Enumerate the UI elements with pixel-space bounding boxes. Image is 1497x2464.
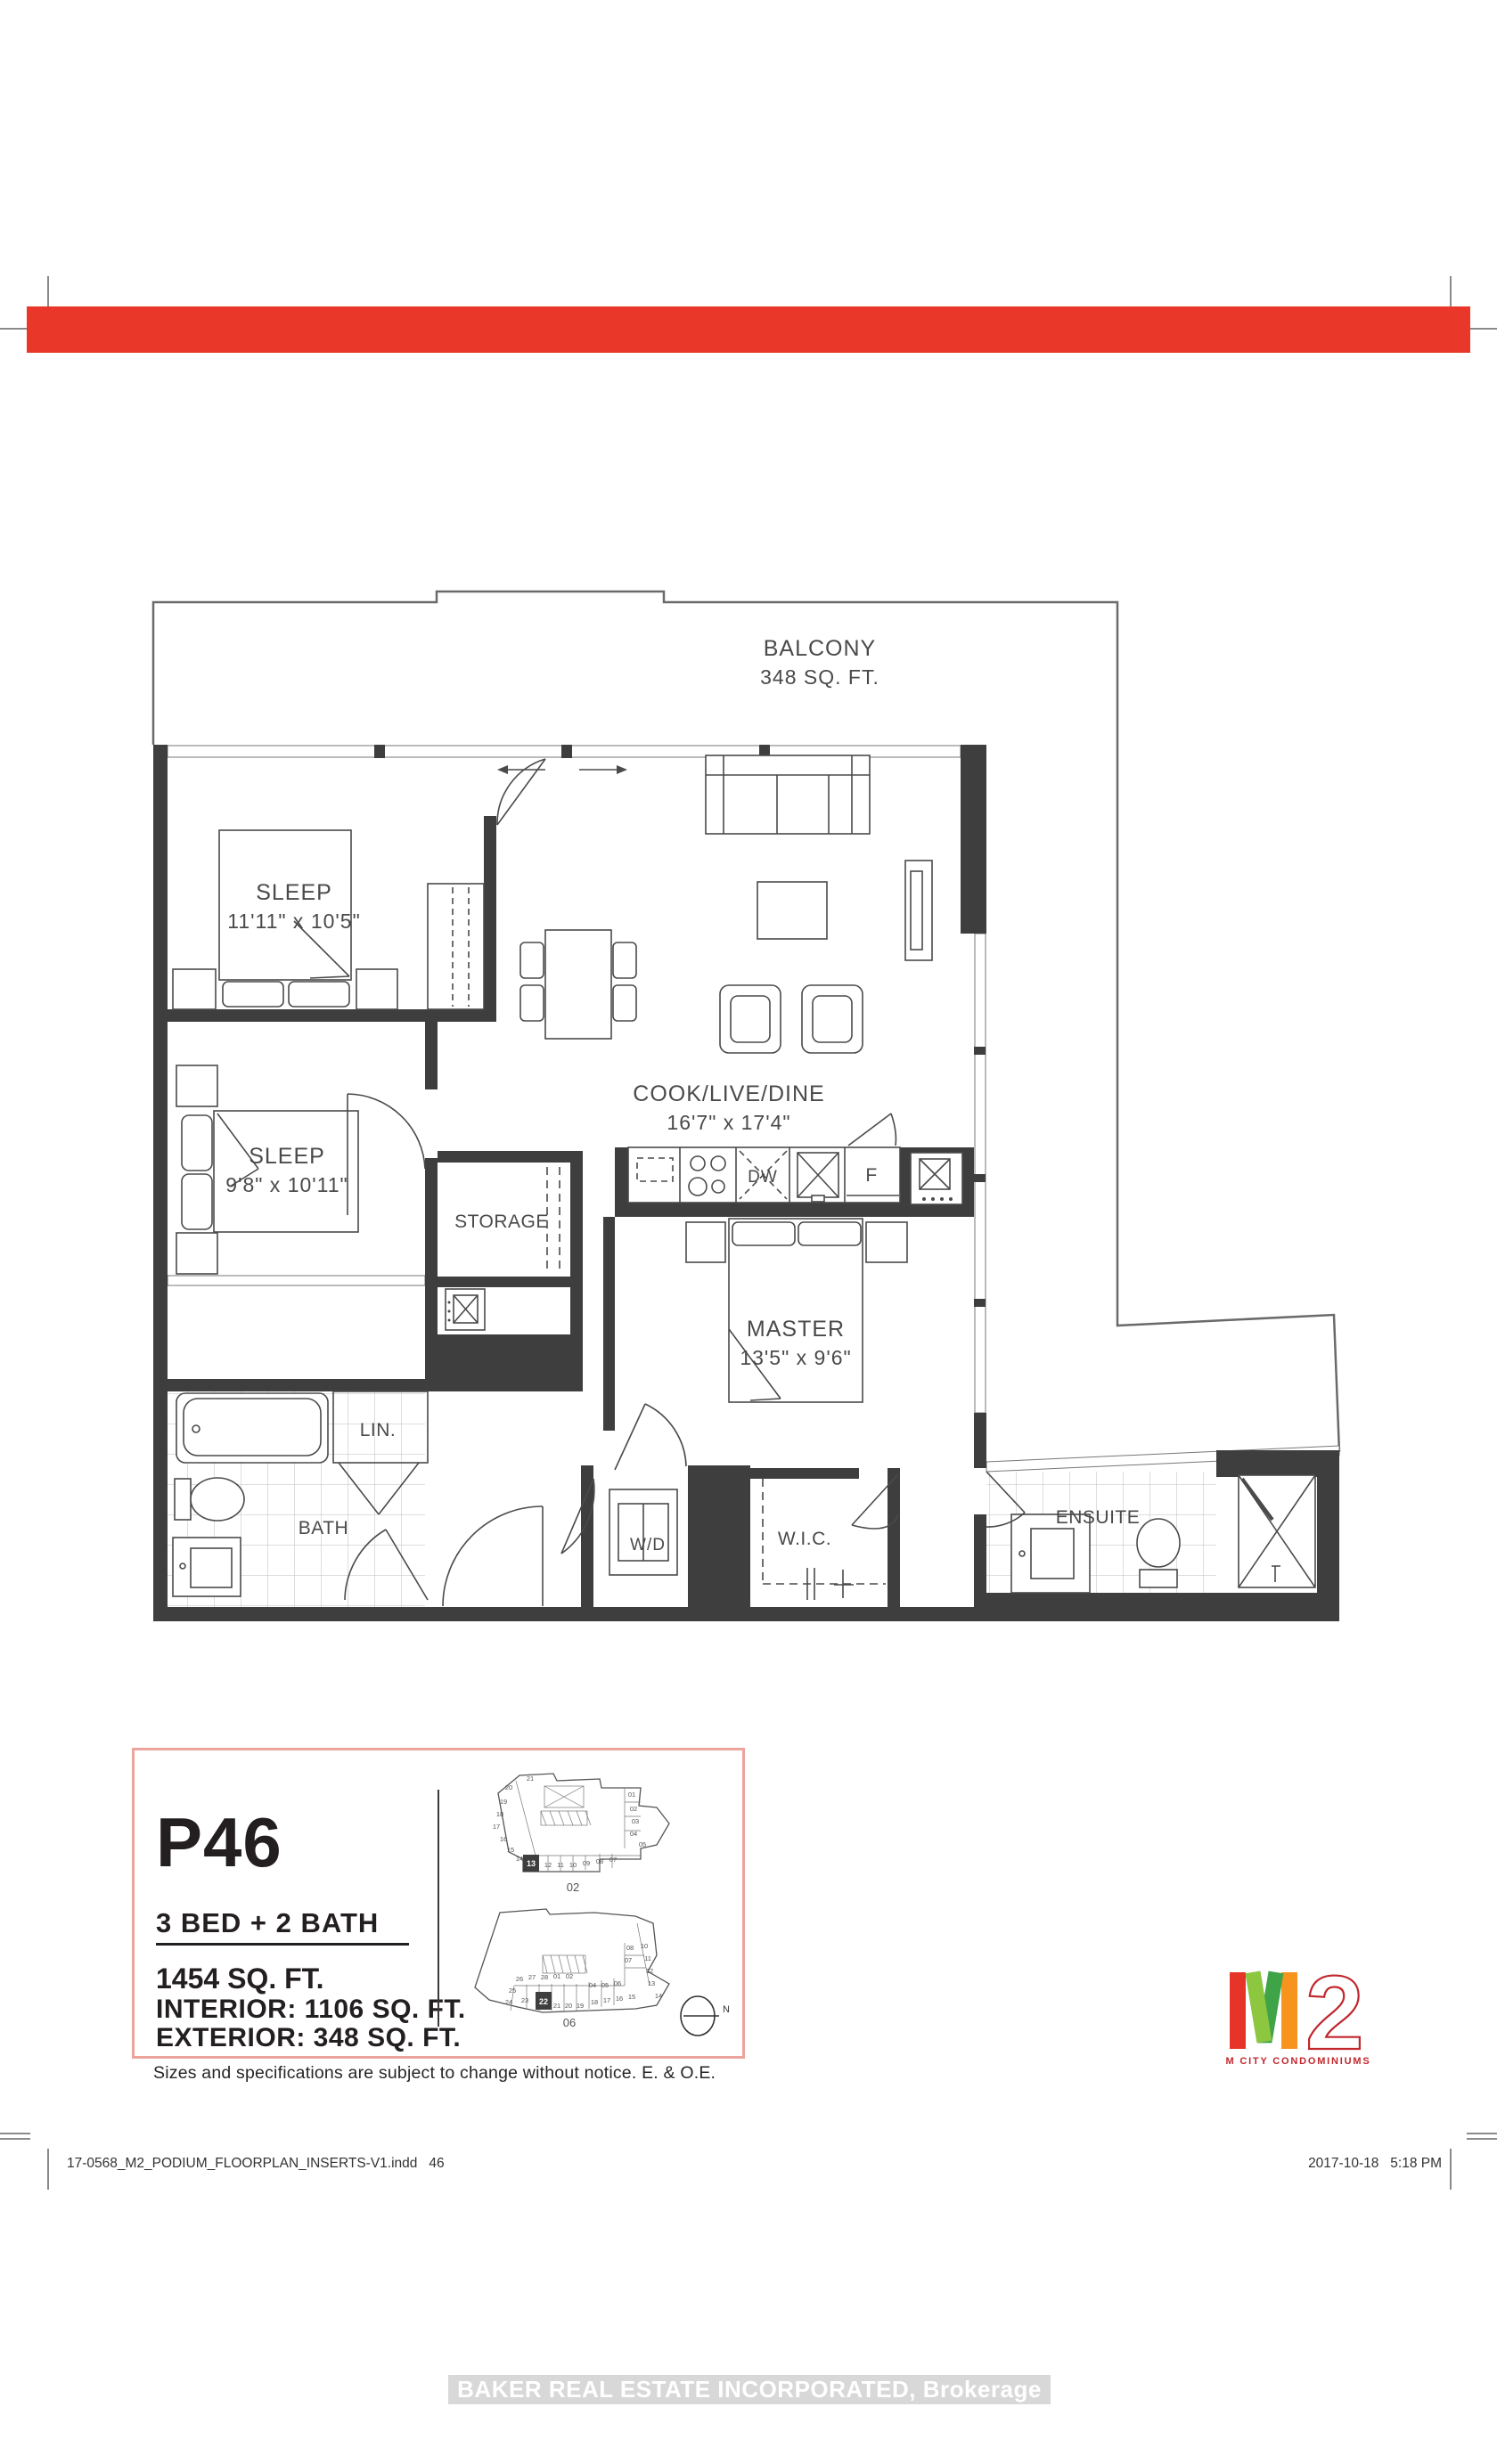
keyplan-unit-number: 24 [505, 1998, 512, 2006]
keyplan-unit-number: 14 [655, 1992, 662, 2000]
keyplan-unit-number: 28 [541, 1973, 548, 1981]
keyplan-unit-number: 06 [614, 1979, 621, 1987]
keyplan-unit-number: 04 [630, 1830, 637, 1838]
disclaimer-text: Sizes and specifications are subject to … [153, 2063, 716, 2084]
living-furniture [706, 755, 932, 1053]
keyplan-unit-number: 08 [596, 1857, 603, 1865]
dishwasher-label: DW [748, 1163, 778, 1192]
keyplan-unit-number: 25 [509, 1987, 516, 1995]
keyplan-unit-number: 04 [589, 1981, 596, 1989]
storage-room [446, 1167, 560, 1330]
keyplan-unit-number: 19 [500, 1798, 507, 1806]
north-label: N [723, 2004, 730, 2015]
keyplan-unit-number: 08 [626, 1944, 634, 1952]
linen-label: LIN. [360, 1416, 397, 1445]
keyplan-unit-number: 26 [516, 1975, 523, 1983]
sleep1-label: SLEEP 11'11" x 10'5" [227, 878, 361, 935]
crop-mark [47, 2149, 49, 2190]
balcony-label: BALCONY 348 SQ. FT. [760, 634, 879, 691]
keyplan-06: 22 2627280102252423040506212019181716150… [461, 1900, 685, 2030]
entry-doors [443, 1479, 594, 1606]
keyplan-unit-number: 23 [521, 1996, 528, 2004]
keyplan-unit-number: 10 [569, 1861, 577, 1869]
keyplan-unit-number: 10 [641, 1942, 648, 1950]
laundry-label: W/D [630, 1531, 666, 1560]
dining-set [520, 930, 636, 1039]
unit-info-box: P46 3 BED + 2 BATH 1454 SQ. FT. INTERIOR… [132, 1748, 745, 2059]
unit-code: P46 [156, 1802, 282, 1883]
keyplan-unit-number: 15 [628, 1993, 635, 2001]
bath-label: BATH [299, 1514, 348, 1543]
footer-filename: 17-0568_M2_PODIUM_FLOORPLAN_INSERTS-V1.i… [67, 2156, 445, 2172]
master-label: MASTER 13'5" x 9'6" [740, 1315, 851, 1372]
keyplan-unit-number: 27 [528, 1973, 536, 1981]
storage-label: STORAGE [454, 1208, 549, 1236]
keyplan-unit-number: 20 [505, 1783, 512, 1791]
divider-rule [156, 1943, 409, 1946]
keyplan-unit-number: 02 [566, 1972, 573, 1980]
keyplan-unit-number: 12 [646, 1967, 653, 1975]
keyplan-floor-label: 02 [567, 1881, 579, 1894]
crop-mark [1467, 2133, 1497, 2134]
keyplan-unit-number: 09 [583, 1859, 590, 1867]
m2-logo-tagline: M CITY CONDOMINIUMS [1223, 2056, 1374, 2067]
keyplan-highlight-number: 13 [527, 1859, 536, 1868]
keyplan-unit-number: 11 [644, 1954, 651, 1962]
keyplan-unit-number: 01 [628, 1791, 635, 1799]
keyplan-unit-number: 11 [557, 1861, 564, 1869]
keyplan-unit-number: 12 [544, 1861, 552, 1869]
keyplan-unit-number: 21 [527, 1775, 534, 1783]
keyplan-unit-number: 03 [632, 1817, 639, 1825]
cook-live-dine-label: COOK/LIVE/DINE 16'7" x 17'4" [633, 1080, 824, 1137]
crop-mark [1450, 2149, 1452, 2190]
m2-logo-numeral: 2 [1305, 1970, 1364, 2060]
keyplan-unit-number: 13 [648, 1979, 655, 1987]
keyplan-unit-number: 21 [553, 2002, 560, 2010]
m2-logo-m-icon [1230, 1972, 1297, 2049]
keyplan-unit-number: 05 [601, 1981, 609, 1989]
keyplan-unit-number: 18 [496, 1810, 503, 1818]
keyplan-unit-number: 19 [577, 2002, 584, 2010]
brokerage-watermark: BAKER REAL ESTATE INCORPORATED, Brokerag… [448, 2375, 1051, 2404]
fridge-label: F [865, 1162, 877, 1190]
interior-area: INTERIOR: 1106 SQ. FT. [156, 1995, 466, 2025]
keyplan-unit-number: 20 [565, 2002, 572, 2010]
keyplan-floor-label: 06 [563, 2016, 576, 2029]
keyplan-unit-number: 18 [591, 1998, 598, 2006]
unit-config: 3 BED + 2 BATH [156, 1907, 379, 1939]
exterior-area: EXTERIOR: 348 SQ. FT. [156, 2023, 461, 2053]
ensuite-label: ENSUITE [1056, 1504, 1141, 1532]
crop-mark [0, 2133, 30, 2134]
keyplan-unit-number: 15 [507, 1846, 514, 1854]
keyplan-unit-number: 17 [493, 1823, 500, 1831]
keyplan-02: 13 2021191817161514121110090807010203040… [466, 1765, 680, 1900]
keyplan-unit-number: 02 [630, 1805, 637, 1813]
keyplan-unit-number: 05 [639, 1840, 646, 1848]
keyplan-unit-number: 07 [609, 1856, 617, 1864]
keyplan-unit-number: 01 [553, 1972, 560, 1980]
floorplan-page: BALCONY 348 SQ. FT. SLEEP 11'11" x 10'5"… [0, 0, 1497, 2464]
crop-mark [0, 2138, 30, 2140]
m2-logo: 2 [1223, 1970, 1374, 2060]
total-area: 1454 SQ. FT. [156, 1962, 324, 1995]
floorplan-drawing [0, 0, 1497, 2464]
keyplan-highlight-number: 22 [539, 1997, 548, 2006]
keyplan-unit-number: 07 [625, 1956, 632, 1964]
sleep2-label: SLEEP 9'8" x 10'11" [225, 1142, 348, 1199]
footer-timestamp: 2017-10-18 5:18 PM [1308, 2156, 1442, 2172]
keyplan-unit-number: 16 [616, 1995, 623, 2003]
info-box-divider [438, 1790, 439, 2027]
crop-mark [1467, 2138, 1497, 2140]
brokerage-watermark-text: BAKER REAL ESTATE INCORPORATED, Brokerag… [457, 2376, 1042, 2403]
north-arrow: N [676, 1993, 733, 2039]
keyplan-units-1: 2627280102252423040506212019181716150807… [505, 1942, 662, 2010]
sliding-door-arrows [497, 765, 627, 774]
keyplan-unit-number: 17 [603, 1996, 610, 2004]
keyplan-unit-number: 16 [500, 1835, 507, 1843]
keyplan-unit-number: 14 [516, 1855, 523, 1863]
wic-label: W.I.C. [778, 1525, 831, 1554]
